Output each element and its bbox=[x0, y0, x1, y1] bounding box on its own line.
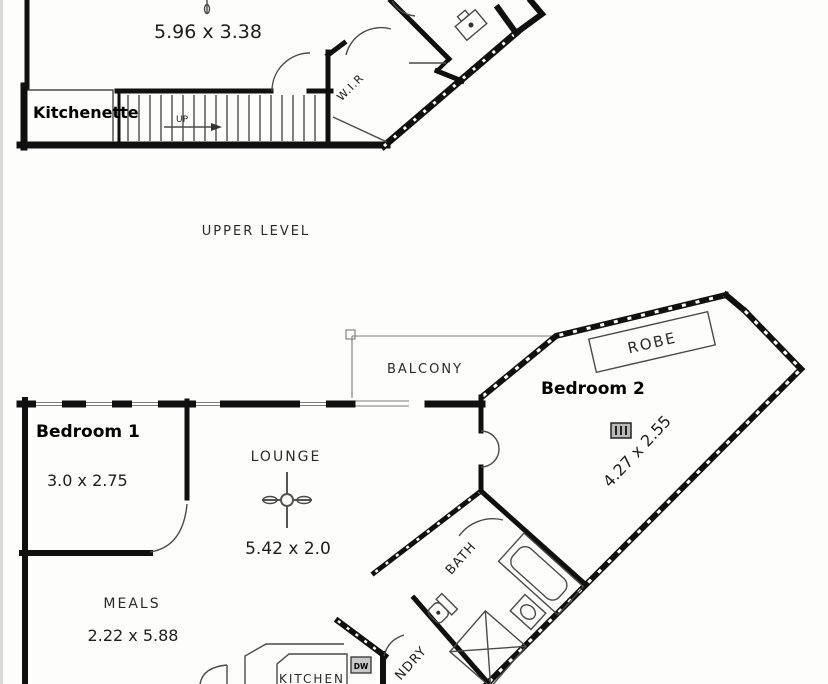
dim-lounge: 5.42 x 2.0 bbox=[245, 539, 331, 559]
window-hatch-bedroom2-se bbox=[487, 311, 801, 684]
wall-hall-corner bbox=[328, 43, 344, 55]
balcony: BALCONY bbox=[346, 330, 556, 406]
basin-bowl bbox=[518, 602, 539, 622]
dim-bedroom1: 3.0 x 2.75 bbox=[47, 471, 128, 490]
ceiling-fan-icon-lounge bbox=[262, 472, 312, 528]
stairs-up-label: UP bbox=[176, 115, 189, 125]
wall-ensuite-c bbox=[437, 71, 462, 81]
toilet-dot bbox=[435, 610, 441, 616]
door-arc-bedroom1 bbox=[150, 504, 187, 552]
robe-label: ROBE bbox=[626, 329, 679, 358]
window-gap bbox=[300, 400, 326, 408]
room-label-kitchenette: Kitchenette bbox=[33, 103, 139, 122]
wall-bath-laundry-divider bbox=[414, 598, 489, 684]
balcony-post bbox=[346, 330, 355, 339]
room-label-bedroom1: Bedroom 1 bbox=[36, 422, 140, 442]
window-gap bbox=[196, 400, 220, 408]
window-gap bbox=[86, 400, 112, 408]
upper-level-plan: UP 5.96 x 3.38 Kitchenette W.I.R UPPER L… bbox=[20, 0, 542, 239]
toilet-icon-bath bbox=[425, 594, 458, 627]
shower-cross bbox=[450, 611, 526, 684]
wall-notch-b bbox=[516, 1, 542, 33]
window-gap bbox=[132, 400, 158, 408]
ceiling-fan-icon bbox=[205, 0, 210, 14]
toilet-cistern bbox=[458, 10, 470, 21]
wir-line-a bbox=[333, 117, 387, 142]
room-label-wir: W.I.R bbox=[334, 71, 366, 103]
bathtub-inner bbox=[507, 543, 570, 604]
door-arc-meals bbox=[200, 665, 227, 684]
lower-level-plan: BALCONY bbox=[20, 295, 801, 684]
room-label-laundry: NDRY bbox=[392, 644, 430, 684]
heater-icon bbox=[611, 423, 631, 438]
dim-upper-room: 5.96 x 3.38 bbox=[154, 21, 262, 43]
upper-level-caption: UPPER LEVEL bbox=[202, 224, 310, 239]
floor-plan-drawing: UP 5.96 x 3.38 Kitchenette W.I.R UPPER L… bbox=[0, 0, 828, 684]
room-label-lounge: LOUNGE bbox=[251, 449, 322, 465]
window-gap bbox=[36, 400, 62, 408]
stair-treads bbox=[128, 95, 315, 141]
room-label-bath: BATH bbox=[443, 539, 480, 578]
shower-icon bbox=[450, 611, 526, 684]
toilet-dot bbox=[467, 21, 474, 28]
wall-bedroom2-ne bbox=[726, 295, 745, 311]
wall-notch-a bbox=[498, 8, 516, 33]
door-arc-bedroom2 bbox=[481, 431, 499, 467]
door-arc-wir bbox=[346, 28, 391, 55]
wall-bedroom2-e bbox=[745, 311, 801, 369]
room-label-bedroom2: Bedroom 2 bbox=[541, 379, 645, 399]
balcony-sliding-door bbox=[353, 401, 409, 406]
dim-meals: 2.22 x 5.88 bbox=[88, 626, 179, 645]
fan-hub bbox=[281, 494, 293, 506]
dishwasher-label: DW bbox=[354, 662, 369, 671]
scan-edge-artifact bbox=[0, 0, 3, 684]
door-arc-stairs bbox=[272, 53, 310, 91]
wall-bedroom2-se bbox=[487, 369, 801, 684]
door-arc-laundry bbox=[384, 635, 404, 656]
room-label-balcony: BALCONY bbox=[387, 362, 463, 377]
stairs: UP bbox=[128, 95, 315, 141]
floor-plan: UP 5.96 x 3.38 Kitchenette W.I.R UPPER L… bbox=[0, 0, 828, 684]
room-label-meals: MEALS bbox=[103, 596, 160, 612]
door-arc-bath bbox=[459, 519, 503, 536]
wall-bath-north bbox=[481, 491, 586, 585]
wall-kitchen-diagonal bbox=[338, 621, 385, 656]
room-label-kitchen: KITCHEN bbox=[279, 672, 345, 684]
toilet-icon bbox=[451, 5, 486, 40]
